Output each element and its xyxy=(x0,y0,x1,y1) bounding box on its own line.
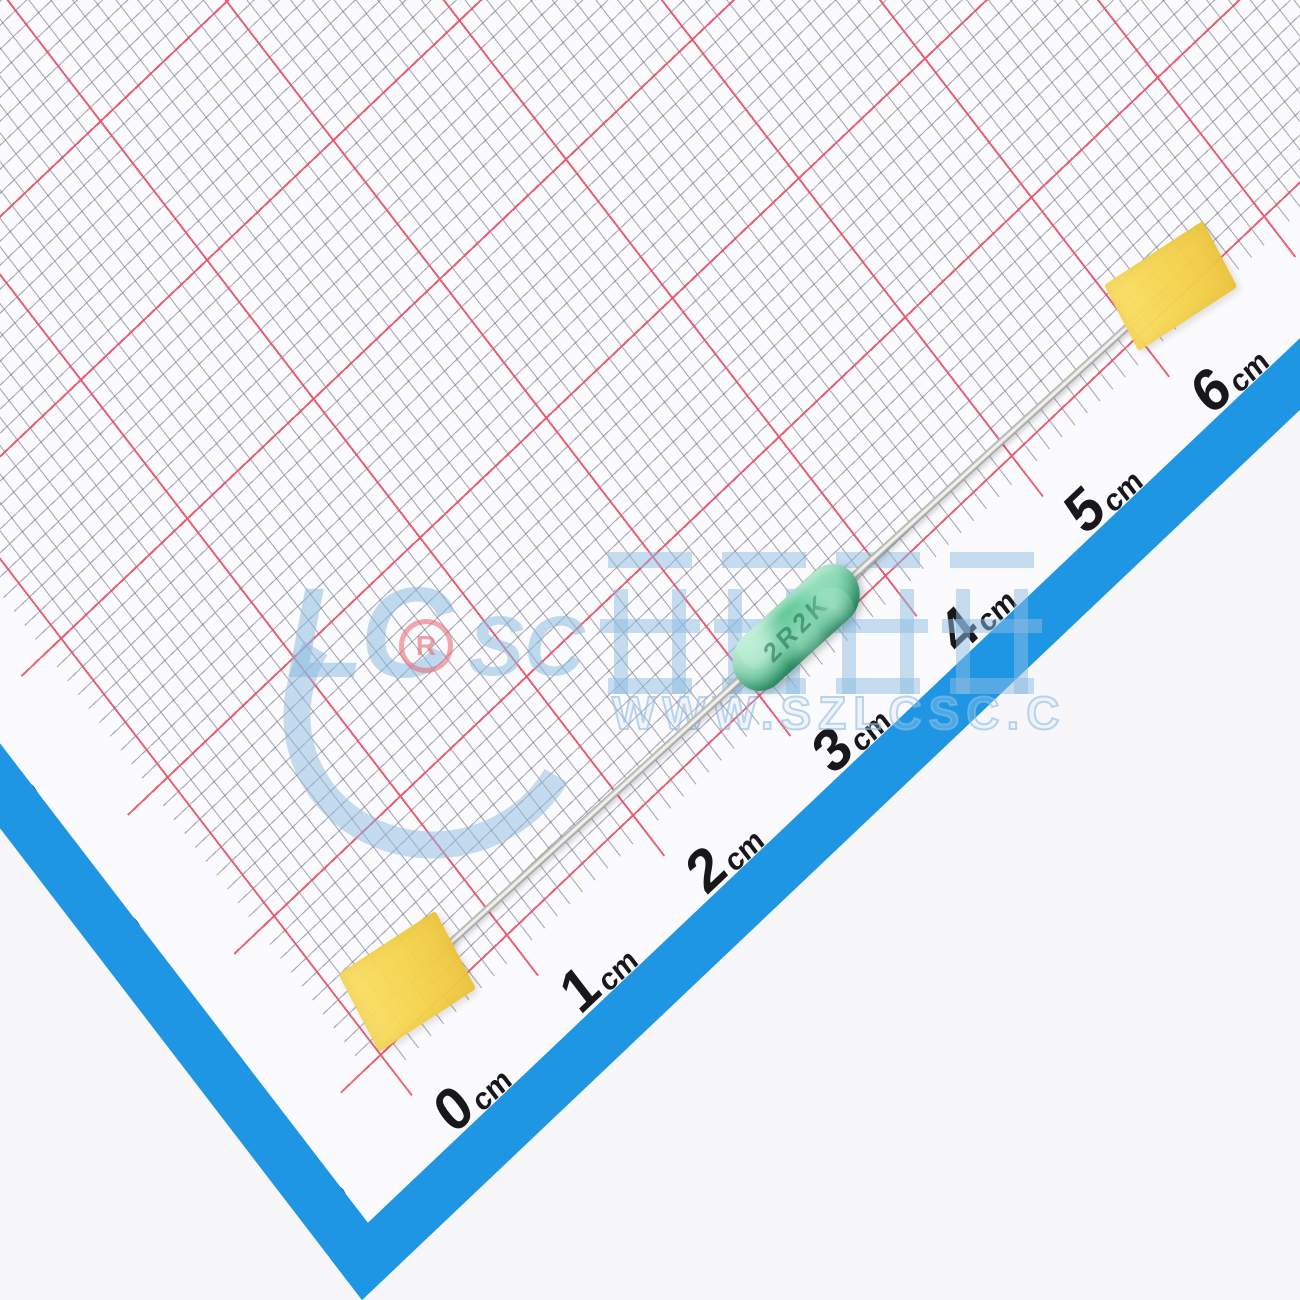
millimeter-grid-card: 0cm1cm2cm3cm4cm5cm6cm7cm 0cm1cm2cm3cm xyxy=(0,0,1300,1300)
photo-viewport: 0cm1cm2cm3cm4cm5cm6cm7cm 0cm1cm2cm3cm LC… xyxy=(0,0,1300,1300)
